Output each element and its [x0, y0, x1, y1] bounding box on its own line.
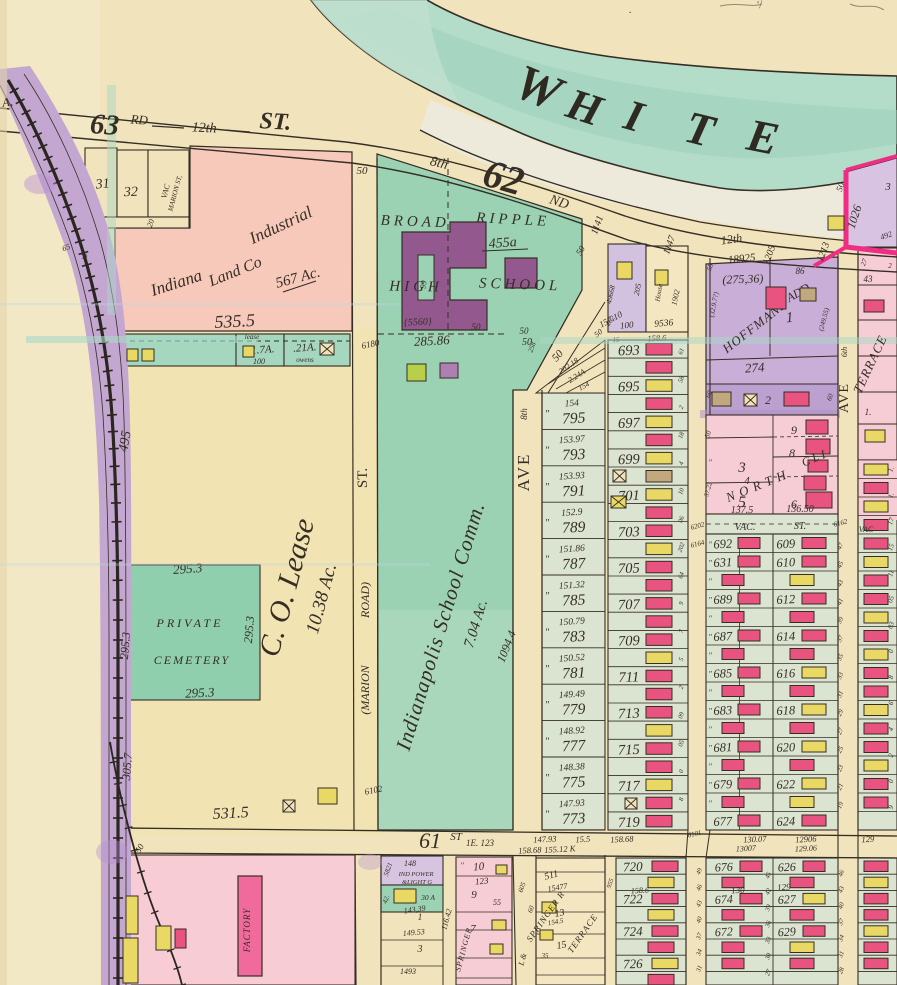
- svg-text:BROAD: BROAD: [380, 213, 450, 231]
- svg-text:IND POWER: IND POWER: [398, 871, 434, 878]
- svg-text:295.3: 295.3: [185, 684, 215, 701]
- svg-text:50: 50: [357, 165, 369, 177]
- svg-text:12th: 12th: [720, 231, 743, 248]
- svg-text:679: 679: [713, 777, 733, 792]
- svg-text:151.86: 151.86: [558, 544, 585, 556]
- svg-text:687: 687: [713, 629, 733, 644]
- svg-text:CEMETERY: CEMETERY: [154, 653, 230, 667]
- svg-text:VAC.: VAC.: [735, 522, 756, 533]
- svg-text:620: 620: [776, 740, 796, 755]
- svg-text:152.9: 152.9: [561, 507, 583, 518]
- svg-text:3: 3: [417, 944, 423, 955]
- svg-text:13007: 13007: [736, 843, 757, 853]
- svg-text:148.92: 148.92: [558, 726, 585, 738]
- svg-text:148.38: 148.38: [558, 762, 585, 774]
- svg-text:685: 685: [713, 666, 732, 681]
- svg-text:129.06: 129.06: [795, 843, 817, 853]
- svg-text:owens: owens: [296, 356, 314, 364]
- svg-text:795: 795: [562, 409, 586, 427]
- svg-text:100: 100: [253, 357, 265, 366]
- svg-text:100: 100: [620, 319, 635, 330]
- svg-text:295.3: 295.3: [173, 560, 204, 577]
- svg-text:707: 707: [618, 597, 641, 614]
- svg-text:531.5: 531.5: [212, 804, 249, 823]
- svg-text:158.6: 158.6: [631, 886, 649, 896]
- svg-text:ST: ST: [450, 831, 463, 843]
- svg-text:9: 9: [791, 423, 797, 437]
- svg-text:2: 2: [888, 262, 892, 270]
- svg-text:775: 775: [562, 773, 586, 791]
- svg-text:695: 695: [618, 379, 640, 396]
- svg-text:9536: 9536: [654, 318, 674, 330]
- svg-text:627: 627: [777, 892, 797, 907]
- svg-text:1: 1: [418, 912, 423, 922]
- svg-text:(275,36): (275,36): [722, 271, 763, 286]
- svg-text:155.12 K: 155.12 K: [544, 843, 577, 855]
- svg-text:719: 719: [618, 815, 641, 832]
- svg-text:629: 629: [777, 924, 796, 939]
- svg-text:43: 43: [864, 274, 874, 284]
- svg-text:RD: RD: [129, 111, 149, 127]
- svg-text:147.93: 147.93: [558, 798, 585, 810]
- svg-text:ST.: ST.: [259, 108, 292, 136]
- svg-text:689: 689: [713, 592, 733, 607]
- svg-text:616: 616: [776, 666, 796, 681]
- svg-text:622: 622: [776, 777, 795, 792]
- svg-text:ST.: ST.: [794, 521, 806, 532]
- svg-text:610: 610: [776, 555, 796, 570]
- svg-text:677: 677: [713, 814, 733, 829]
- svg-text:149.49: 149.49: [558, 689, 585, 701]
- svg-text:129: 129: [777, 882, 792, 893]
- svg-text:147.93: 147.93: [533, 833, 557, 844]
- svg-text:50: 50: [472, 322, 482, 332]
- svg-text:703: 703: [618, 524, 640, 541]
- svg-text:720: 720: [623, 859, 644, 875]
- svg-text:787: 787: [562, 555, 587, 573]
- svg-text:295.3: 295.3: [117, 632, 133, 660]
- svg-text:FACTORY: FACTORY: [242, 908, 252, 954]
- svg-text:6th: 6th: [840, 347, 849, 357]
- svg-text:699: 699: [618, 452, 641, 469]
- svg-text:153.93: 153.93: [558, 471, 585, 483]
- svg-text:150.52: 150.52: [558, 653, 585, 665]
- svg-text:626: 626: [777, 860, 796, 875]
- svg-text:129: 129: [861, 834, 875, 845]
- svg-text:631: 631: [713, 555, 732, 570]
- svg-text:693: 693: [618, 343, 640, 360]
- svg-text:149.53: 149.53: [402, 927, 425, 938]
- svg-text:153.97: 153.97: [558, 434, 586, 446]
- svg-text:789: 789: [562, 519, 586, 537]
- svg-text:ST.: ST.: [355, 468, 371, 488]
- svg-text:(MARION: (MARION: [358, 664, 372, 714]
- svg-text:681: 681: [713, 740, 732, 755]
- svg-text:1: 1: [785, 310, 794, 327]
- svg-text:15.5: 15.5: [575, 834, 590, 845]
- svg-text:305.7: 305.7: [119, 752, 135, 782]
- svg-text:lease: lease: [245, 333, 259, 341]
- svg-text:137.5: 137.5: [731, 505, 754, 516]
- svg-text:3: 3: [737, 460, 746, 476]
- svg-text:612: 612: [776, 592, 795, 607]
- svg-text:717: 717: [618, 778, 641, 795]
- svg-text:709: 709: [618, 633, 641, 650]
- svg-text:683: 683: [713, 703, 732, 718]
- svg-text:136.50: 136.50: [786, 504, 814, 515]
- svg-text:86: 86: [796, 266, 806, 276]
- svg-text:150.79: 150.79: [558, 616, 585, 628]
- svg-text:781: 781: [562, 664, 586, 682]
- svg-text:791: 791: [562, 482, 586, 500]
- svg-text:713: 713: [618, 706, 640, 723]
- svg-text:VAC: VAC: [859, 525, 874, 534]
- svg-text:672: 672: [714, 924, 733, 939]
- svg-text:12th: 12th: [191, 120, 217, 136]
- svg-text:50: 50: [522, 337, 532, 348]
- svg-text:785: 785: [562, 591, 586, 609]
- svg-text:.21A.: .21A.: [293, 341, 317, 355]
- svg-text:ROAD): ROAD): [358, 582, 372, 619]
- svg-text:{5560}: {5560}: [404, 316, 433, 328]
- svg-text:8th: 8th: [519, 408, 529, 420]
- svg-text:724: 724: [623, 923, 644, 939]
- svg-text:676: 676: [714, 860, 733, 875]
- svg-text:8: 8: [789, 446, 795, 460]
- svg-text:2: 2: [765, 393, 771, 407]
- svg-text:154: 154: [564, 399, 579, 410]
- svg-text:1E. 123: 1E. 123: [466, 838, 494, 848]
- svg-text:711: 711: [618, 669, 639, 686]
- svg-text:50: 50: [520, 326, 530, 336]
- svg-text:PRIVATE: PRIVATE: [156, 616, 224, 630]
- svg-text:30 A: 30 A: [420, 893, 435, 902]
- svg-text:609: 609: [776, 536, 796, 551]
- svg-text:9: 9: [471, 889, 477, 901]
- svg-text:32: 32: [123, 185, 139, 201]
- svg-text:63: 63: [89, 108, 120, 142]
- svg-text:614: 614: [776, 629, 795, 644]
- svg-text:10: 10: [473, 861, 486, 874]
- svg-text:535.5: 535.5: [214, 310, 255, 332]
- svg-text:123: 123: [475, 875, 490, 886]
- svg-text:148: 148: [404, 859, 416, 868]
- svg-text:618: 618: [776, 703, 796, 718]
- svg-text:793: 793: [562, 446, 586, 464]
- svg-text:773: 773: [562, 810, 586, 828]
- svg-text:3: 3: [884, 181, 891, 193]
- svg-text:35: 35: [541, 952, 550, 960]
- svg-text:SCHOOL: SCHOOL: [479, 276, 562, 295]
- svg-text:274: 274: [744, 359, 765, 375]
- svg-text:&LIGHT G: &LIGHT G: [402, 879, 432, 886]
- svg-text:1493: 1493: [400, 967, 416, 976]
- svg-text:61: 61: [419, 828, 441, 853]
- svg-text:697: 697: [618, 415, 641, 432]
- svg-text:130: 130: [731, 885, 746, 896]
- svg-text:HIGH: HIGH: [388, 279, 443, 296]
- svg-text:705: 705: [618, 560, 640, 577]
- svg-text:A,: A,: [0, 94, 14, 110]
- svg-text:158.68: 158.68: [518, 844, 543, 855]
- svg-text:·: ·: [629, 8, 632, 19]
- svg-text:31: 31: [94, 176, 110, 192]
- svg-text:624: 624: [776, 814, 795, 829]
- svg-text:1.: 1.: [865, 407, 872, 417]
- svg-text:783: 783: [562, 628, 586, 646]
- svg-text:151.32: 151.32: [558, 580, 585, 592]
- svg-text:726: 726: [623, 956, 644, 972]
- svg-text:55: 55: [493, 898, 501, 907]
- svg-text:715: 715: [618, 742, 640, 759]
- svg-text:AVE: AVE: [514, 453, 533, 492]
- svg-text:779: 779: [562, 701, 586, 719]
- svg-text:777: 777: [562, 737, 587, 755]
- svg-text:692: 692: [713, 537, 732, 552]
- svg-text:285.86: 285.86: [414, 332, 451, 349]
- svg-text:158.68: 158.68: [610, 833, 635, 844]
- svg-text:295.3: 295.3: [241, 616, 257, 644]
